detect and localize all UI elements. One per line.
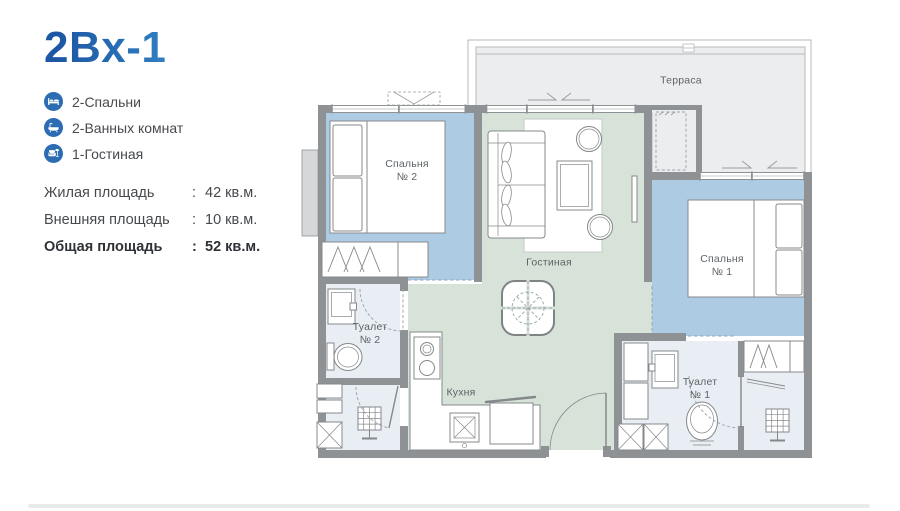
sofa bbox=[488, 131, 545, 238]
ac-unit bbox=[388, 92, 440, 105]
living-room-label: Гостиная bbox=[526, 257, 572, 270]
toilet1-label: Туалет № 1 bbox=[683, 376, 717, 402]
tv-unit bbox=[632, 176, 637, 222]
toilet2-label: Туалет № 2 bbox=[353, 321, 387, 347]
dining-table bbox=[500, 279, 556, 337]
bedroom1-bed bbox=[688, 200, 804, 297]
footer-divider bbox=[28, 504, 870, 508]
terrace-label: Терраса bbox=[660, 75, 702, 88]
bedroom1-label: Спальня № 1 bbox=[700, 253, 744, 279]
wall-shaft bbox=[302, 150, 318, 236]
floor-plan bbox=[0, 0, 900, 511]
bedroom2-label: Спальня № 2 bbox=[385, 158, 429, 184]
kitchen-label: Кухня bbox=[446, 387, 475, 400]
brochure-page: 2Bx-1 2-Спальни bbox=[0, 0, 900, 511]
bedroom2-wardrobe bbox=[322, 242, 428, 277]
coffee-table bbox=[557, 161, 592, 210]
